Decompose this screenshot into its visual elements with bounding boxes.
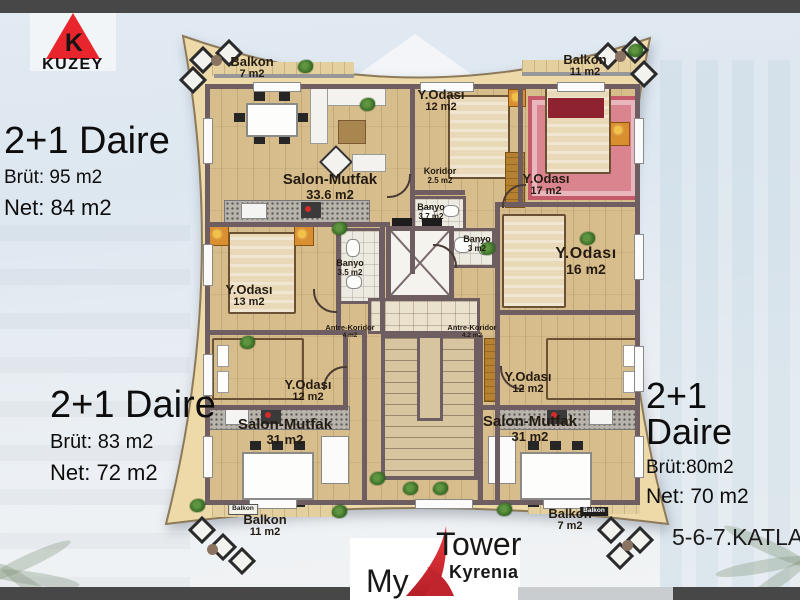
bed-throw [508, 224, 556, 296]
terrace-stool-icon [622, 540, 633, 551]
bed-cover [548, 98, 604, 118]
room-label-bedroom-13: Y.Odası13 m2 [226, 283, 273, 309]
logo-gray-strip [518, 587, 673, 600]
room-label-bedroom-16: Y.Odası16 m2 [555, 245, 616, 277]
window [253, 82, 301, 92]
sofa [352, 154, 386, 172]
apartment-net-area: Net: 70 m2 [646, 485, 800, 509]
plant-icon [580, 232, 595, 245]
apartment-net-area: Net: 72 m2 [50, 460, 216, 486]
nightstand [610, 122, 630, 146]
nightstand [508, 89, 526, 107]
dining-table [246, 103, 298, 137]
terrace-stool-icon [207, 544, 218, 555]
window [415, 499, 473, 509]
plant-icon [190, 499, 205, 512]
room-label-banyo-37: Banyo3.7 m2 [417, 203, 445, 221]
floors-label: 5-6-7.KATLAR [672, 524, 800, 551]
apartment-info-right: 2+1 Daire Brüt:80m2 Net: 70 m2 [646, 378, 800, 509]
room-label-bedroom-top: Y.Odası12 m2 [418, 88, 465, 114]
nightstand [209, 226, 229, 246]
wall [205, 222, 390, 227]
window [634, 118, 644, 164]
plant-icon [332, 505, 347, 518]
plant-icon [360, 98, 375, 111]
apartment-info-bottom-left: 2+1 Daire Brüt: 83 m2 Net: 72 m2 [50, 386, 216, 486]
staircase [381, 334, 478, 480]
plant-icon [403, 482, 418, 495]
apartment-net-area: Net: 84 m2 [4, 195, 170, 221]
door-arc [387, 174, 411, 198]
plant-icon [298, 60, 313, 73]
door-arc [313, 289, 337, 313]
dining-table [520, 452, 592, 500]
kuzey-north-logo: K KUZEY [30, 11, 116, 71]
window [634, 346, 644, 392]
apartment-title: 2+1 Daire [646, 378, 800, 450]
wall [495, 202, 500, 505]
wall [478, 405, 640, 410]
plant-icon [370, 472, 385, 485]
mini-balkon-chip-right: Balkon [580, 507, 608, 516]
room-label-balkon-top-left: Balkon7 m2 [230, 55, 273, 81]
wall [362, 335, 367, 505]
room-label-salon-33: Salon-Mutfak33.6 m2 [283, 172, 377, 202]
plant-icon [332, 222, 347, 235]
nightstand [294, 226, 314, 246]
dining-table [242, 452, 314, 500]
room-label-banyo-3: Banyo3 m2 [463, 235, 491, 253]
terrace-stool-icon [615, 51, 626, 62]
bed [546, 338, 638, 400]
plant-icon [497, 503, 512, 516]
logo-word-my: My [366, 563, 409, 600]
wall [498, 310, 640, 315]
logo-word-tower: Tower [436, 526, 521, 563]
stove [301, 202, 321, 218]
room-label-balkon-top-right: Balkon11 m2 [563, 53, 606, 79]
panel-chip [392, 218, 412, 226]
room-label-salon-bottom-right: Salon-Mutfak31 m2 [483, 414, 577, 444]
floor-plan-poster: Balkon7 m2 Balkon11 m2 Y.Odası12 m2 Y.Od… [0, 0, 800, 600]
room-label-antre-42: Antre-Koridor4.2 m2 [447, 324, 496, 339]
room-label-bedroom-bottom-right: Y.Odası12 m2 [505, 370, 552, 396]
room-label-balkon-bottom-left: Balkon11 m2 [243, 513, 286, 539]
apartment-gross-area: Brüt: 95 m2 [4, 167, 170, 189]
apartment-title: 2+1 Daire [4, 122, 170, 160]
apartment-gross-area: Brüt: 83 m2 [50, 431, 216, 454]
room-label-antre-4: Antre-Koridor4 m2 [325, 324, 374, 339]
wall [205, 405, 347, 410]
north-label: KUZEY [30, 56, 116, 74]
coffee-table [338, 120, 366, 144]
wall [380, 222, 385, 332]
apartment-gross-area: Brüt:80m2 [646, 457, 800, 479]
room-label-koridor: Koridor2.5 m2 [424, 167, 457, 185]
window [203, 244, 213, 286]
plant-icon [628, 44, 643, 57]
room-label-salon-bottom-left: Salon-Mutfak31 m2 [238, 417, 332, 447]
room-label-banyo-35: Banyo3.5 m2 [336, 259, 364, 277]
kitchen-sink [241, 203, 267, 219]
window [634, 436, 644, 478]
logo-word-kyrenia: Kyrenıa [449, 562, 519, 583]
wall [413, 190, 465, 195]
apartment-info-left: 2+1 Daire Brüt: 95 m2 Net: 84 m2 [4, 122, 170, 221]
top-bar [0, 0, 800, 13]
plant-icon [240, 336, 255, 349]
apartment-title: 2+1 Daire [50, 386, 216, 424]
mini-balkon-chip-left: Balkon [228, 504, 258, 515]
wall [336, 227, 341, 330]
window [634, 234, 644, 280]
room-label-bedroom-bottom-left: Y.Odası12 m2 [285, 378, 332, 404]
window [203, 118, 213, 164]
kitchen-sink [589, 409, 613, 425]
sofa [310, 88, 328, 144]
north-letter: K [65, 29, 83, 58]
window [557, 82, 605, 92]
terrace-stool-icon [211, 55, 222, 66]
room-label-bedroom-17: Y.Odası17 m2 [523, 172, 570, 198]
plant-icon [433, 482, 448, 495]
